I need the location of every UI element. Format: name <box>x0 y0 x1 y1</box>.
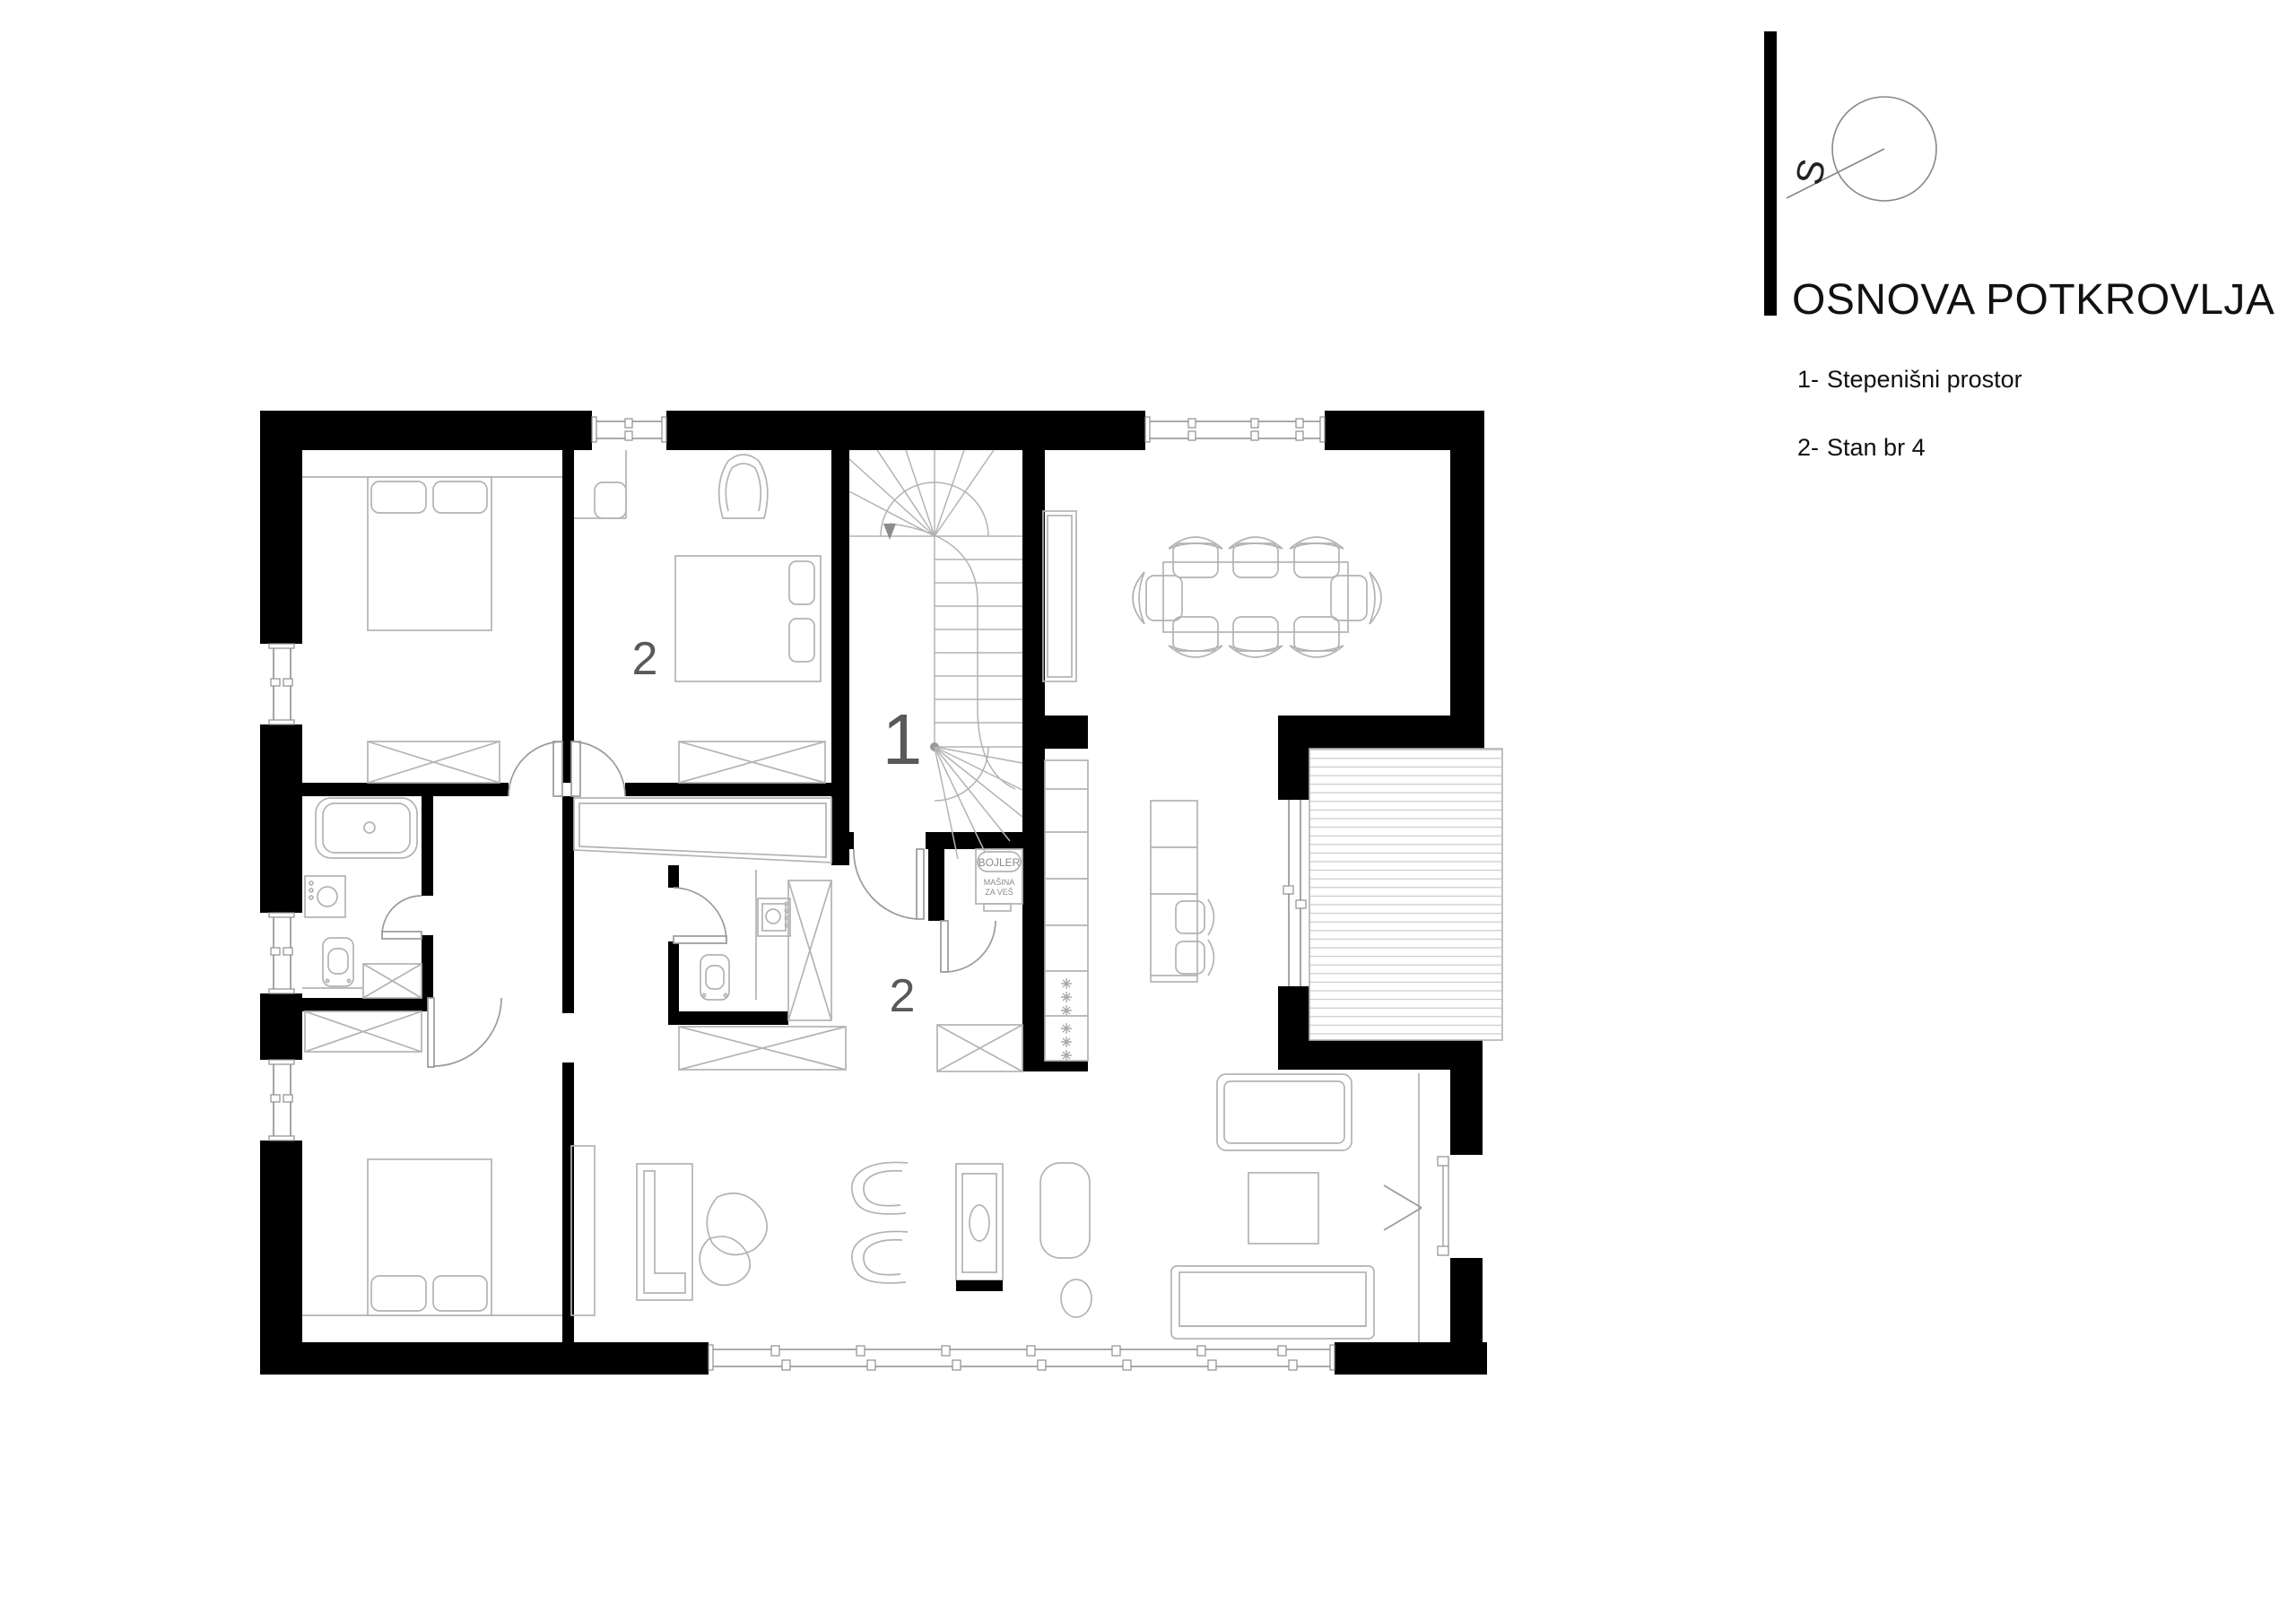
dining-chair-right <box>1331 572 1381 624</box>
toilet-right <box>700 955 729 1000</box>
door-corridor <box>428 998 501 1067</box>
bathroom-right <box>574 798 846 1070</box>
stair-upper-winder <box>849 450 994 536</box>
side-table <box>1248 1173 1318 1244</box>
sloped-closet <box>574 798 831 863</box>
window-left-1 <box>269 644 294 724</box>
kitchen <box>1045 760 1214 1061</box>
nightstand <box>595 482 626 518</box>
window-left-3 <box>269 1060 294 1141</box>
compass-letter: S <box>1787 155 1834 188</box>
stair-direction-arrow <box>883 524 896 540</box>
armchair-upper-room <box>719 455 768 518</box>
dining-chairs-bottom <box>1169 617 1344 657</box>
wardrobe-upper-bedroom <box>368 742 500 783</box>
sofa <box>1171 1266 1374 1339</box>
wall-shelf <box>571 1146 595 1315</box>
door-bathroom-right <box>674 888 726 943</box>
window-balcony-sliding <box>1283 800 1306 986</box>
fireplace-tv-unit <box>956 1164 1003 1291</box>
door-upper-bedroom <box>509 742 562 796</box>
balcony-decking <box>1309 749 1502 1040</box>
kitchen-island <box>1151 801 1197 982</box>
radiator-symbols <box>1061 978 1072 1061</box>
label-upper-room: 2 <box>632 633 658 685</box>
staircase <box>849 450 1022 859</box>
legend-item-1: 1-Stepenišni prostor <box>1797 366 2022 393</box>
washer-label-line2: ZA VEŠ <box>985 888 1013 897</box>
door-room2 <box>571 742 625 796</box>
dining-chairs-top <box>1169 537 1344 577</box>
legend-2-number: 2- <box>1797 434 1819 461</box>
dining-room <box>1043 511 1381 681</box>
title-block: S OSNOVA POTKROVLJA 1-Stepenišni prostor… <box>1764 31 2274 461</box>
washer-label-line1: MAŠINA <box>984 878 1015 887</box>
bedroom-upper <box>302 477 562 783</box>
bar-stools <box>1176 899 1214 976</box>
room-upper-2 <box>574 450 825 783</box>
living-room <box>571 1073 1422 1342</box>
pillow <box>371 481 426 513</box>
coffee-table <box>1040 1163 1090 1258</box>
bathroom-left <box>302 798 422 998</box>
tv-cabinet-l <box>637 1164 692 1300</box>
north-compass: S <box>1787 97 1936 201</box>
label-stairwell: 1 <box>883 699 923 779</box>
legend-1-number: 1- <box>1797 366 1819 393</box>
wardrobe-below-bathroom <box>679 1027 846 1070</box>
toilet-left <box>323 938 353 986</box>
pillow <box>433 481 487 513</box>
daybed-lounge <box>1217 1074 1352 1150</box>
boiler-label: BOJLER <box>978 856 1021 869</box>
door-bathroom-left <box>382 896 422 939</box>
legend-item-2: 2-Stan br 4 <box>1797 434 1926 461</box>
stool <box>1061 1279 1091 1317</box>
window-left-2 <box>269 913 294 993</box>
label-vestibule: 2 <box>890 970 916 1022</box>
title-divider-bar <box>1764 31 1777 316</box>
drawing-title: OSNOVA POTKROVLJA <box>1792 276 2274 324</box>
legend-1-label: Stepenišni prostor <box>1827 366 2022 393</box>
legend-2-label: Stan br 4 <box>1827 434 1926 461</box>
utility-closet: BOJLER MAŠINA ZA VEŠ <box>976 849 1022 911</box>
window-top-1 <box>592 417 666 442</box>
dining-chair-left <box>1133 572 1182 624</box>
pillow <box>433 1276 487 1311</box>
pillow <box>371 1276 426 1311</box>
terrace-door-glazing <box>1443 1158 1448 1253</box>
window-bottom <box>709 1345 1335 1370</box>
tall-wardrobe <box>788 880 831 1020</box>
poufs <box>700 1193 767 1285</box>
wardrobe-lower-bedroom <box>305 1011 422 1052</box>
wardrobe-room2 <box>679 742 825 783</box>
dining-table <box>1163 562 1348 632</box>
terrace-door-arrow <box>1384 1185 1422 1230</box>
bedroom-lower <box>302 1159 562 1315</box>
bathroom-cabinet <box>363 964 422 998</box>
floor-plan-drawing: BOJLER MAŠINA ZA VEŠ <box>0 0 2296 1622</box>
balcony <box>1309 749 1502 1040</box>
pillow <box>789 561 814 604</box>
door-apartment-entry <box>854 849 924 919</box>
wardrobe-vestibule <box>937 1025 1022 1071</box>
armchair-pair <box>852 1162 908 1283</box>
sink-unit <box>758 898 790 936</box>
bathtub <box>316 798 417 858</box>
washing-machine <box>305 876 345 917</box>
window-top-2 <box>1145 417 1325 442</box>
pillow <box>789 619 814 662</box>
door-utility <box>941 921 996 972</box>
